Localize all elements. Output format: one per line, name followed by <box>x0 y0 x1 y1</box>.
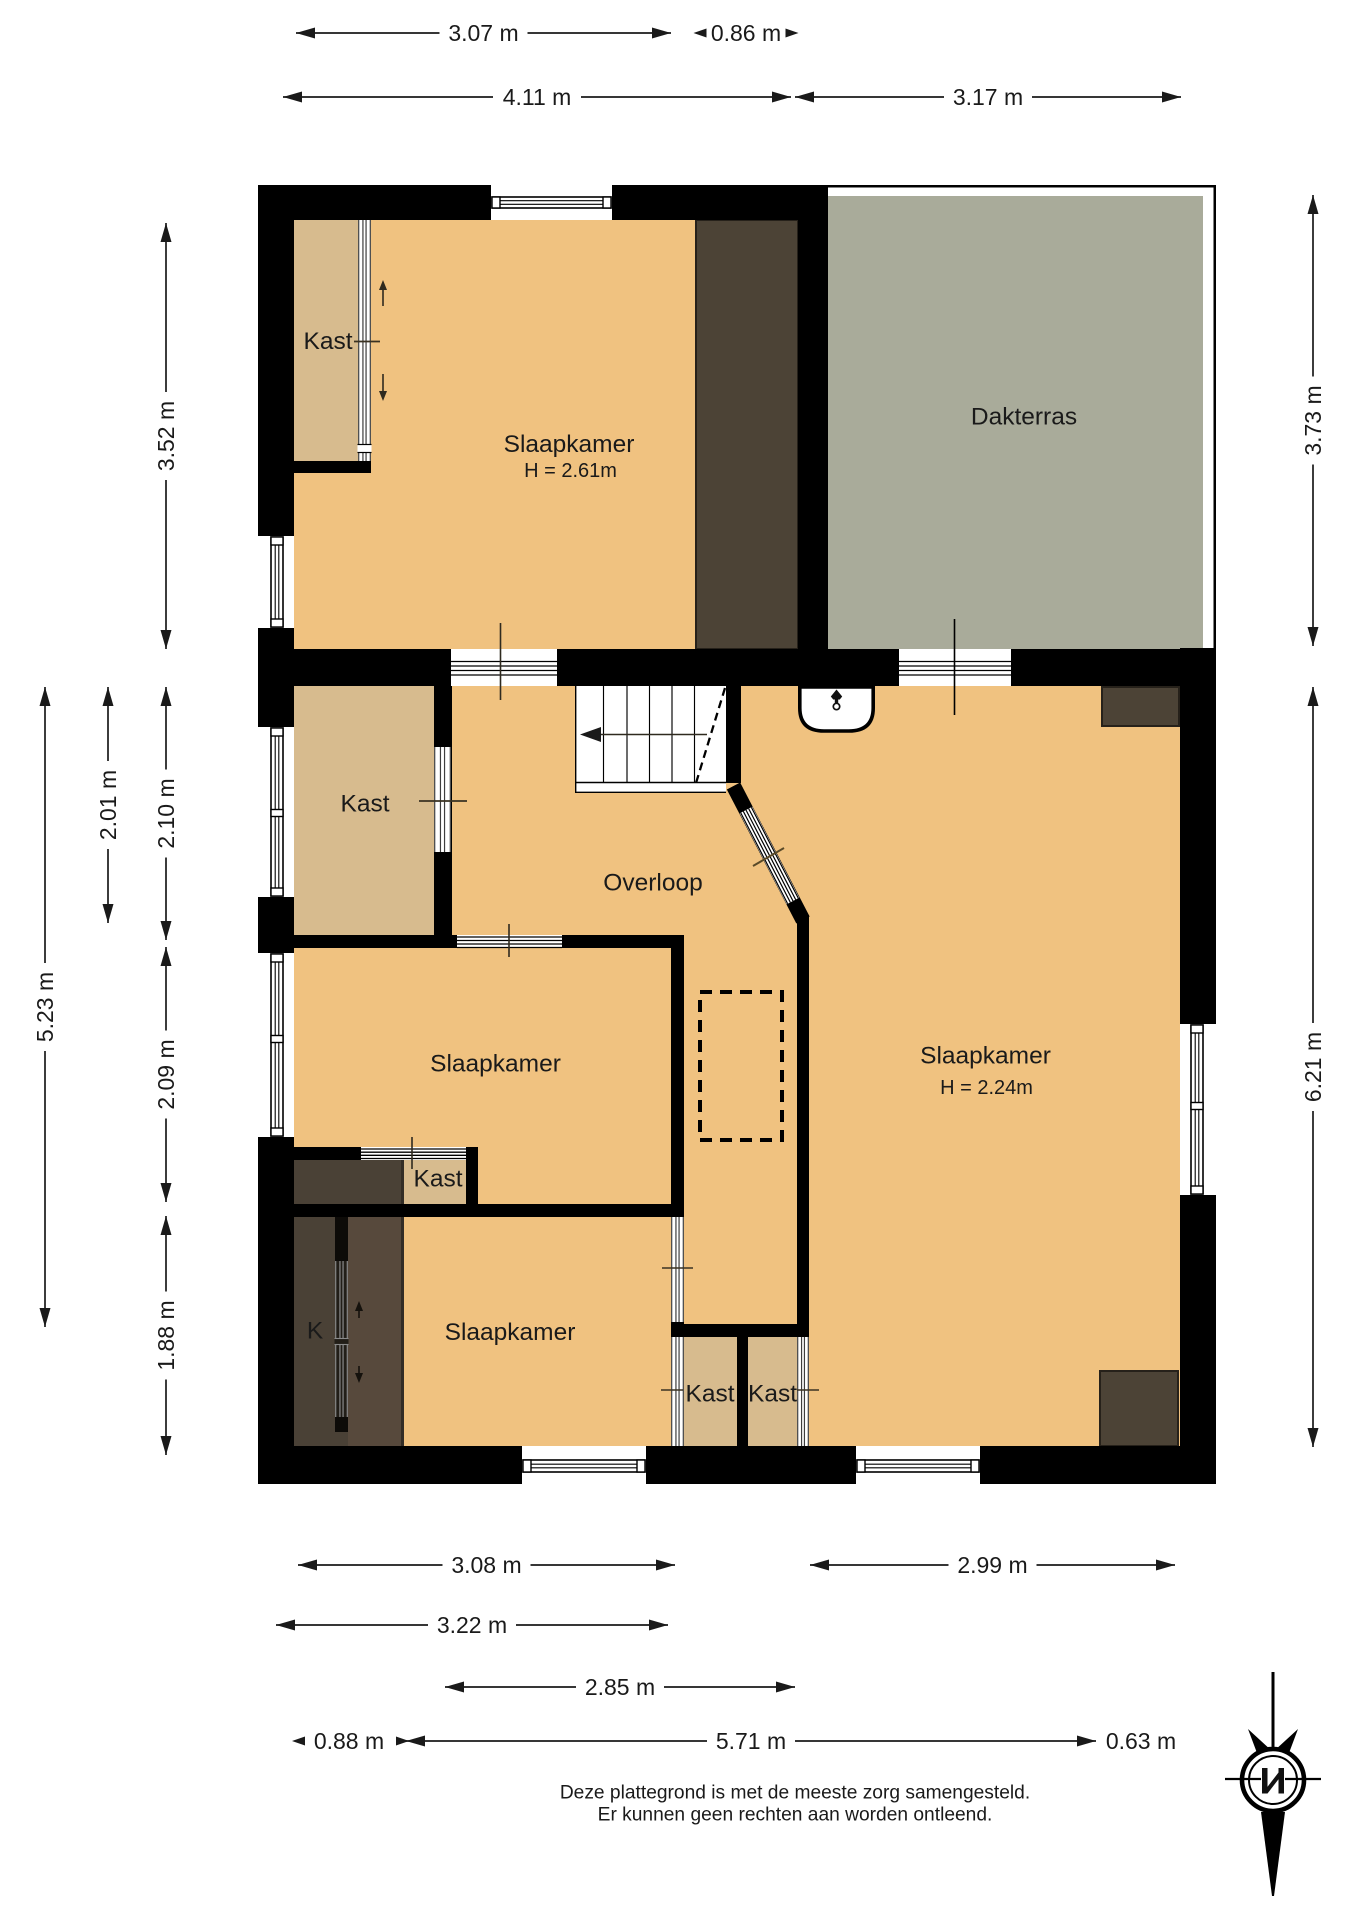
svg-text:6.21 m: 6.21 m <box>1300 1032 1326 1102</box>
svg-text:Kast: Kast <box>340 791 389 818</box>
svg-text:0.88 m: 0.88 m <box>314 1728 384 1754</box>
svg-text:4.11 m: 4.11 m <box>503 84 572 110</box>
svg-text:2.09 m: 2.09 m <box>153 1039 179 1109</box>
svg-text:2.99 m: 2.99 m <box>957 1552 1027 1578</box>
svg-text:1.88 m: 1.88 m <box>153 1300 179 1370</box>
svg-text:0.63 m: 0.63 m <box>1106 1728 1176 1754</box>
svg-text:5.23 m: 5.23 m <box>32 972 58 1042</box>
svg-text:H = 2.24m: H = 2.24m <box>940 1077 1033 1099</box>
svg-text:3.52 m: 3.52 m <box>153 401 179 471</box>
svg-text:2.01 m: 2.01 m <box>95 770 121 840</box>
svg-text:Er kunnen geen rechten aan wor: Er kunnen geen rechten aan worden ontlee… <box>598 1805 993 1826</box>
svg-text:K: K <box>307 1318 324 1345</box>
svg-text:3.17 m: 3.17 m <box>953 84 1023 110</box>
svg-text:Slaapkamer: Slaapkamer <box>430 1051 561 1078</box>
svg-text:Slaapkamer: Slaapkamer <box>445 1319 576 1346</box>
svg-text:Kast: Kast <box>303 328 352 355</box>
svg-text:Kast: Kast <box>748 1381 797 1408</box>
svg-text:H = 2.61m: H = 2.61m <box>524 460 617 482</box>
svg-text:3.07 m: 3.07 m <box>448 20 518 46</box>
svg-text:Dakterras: Dakterras <box>971 404 1077 431</box>
svg-text:Kast: Kast <box>685 1381 734 1408</box>
svg-text:Deze plattegrond is met de mee: Deze plattegrond is met de meeste zorg s… <box>560 1783 1030 1804</box>
svg-text:5.71 m: 5.71 m <box>716 1728 786 1754</box>
svg-text:Overloop: Overloop <box>603 870 702 897</box>
svg-text:3.08 m: 3.08 m <box>451 1552 521 1578</box>
svg-text:Slaapkamer: Slaapkamer <box>920 1043 1051 1070</box>
svg-text:Slaapkamer: Slaapkamer <box>504 431 635 458</box>
svg-text:3.73 m: 3.73 m <box>1300 385 1326 455</box>
svg-text:2.85 m: 2.85 m <box>585 1674 655 1700</box>
svg-text:2.10 m: 2.10 m <box>153 778 179 848</box>
svg-text:Kast: Kast <box>413 1166 462 1193</box>
svg-text:3.22 m: 3.22 m <box>437 1612 507 1638</box>
svg-text:0.86 m: 0.86 m <box>711 20 781 46</box>
